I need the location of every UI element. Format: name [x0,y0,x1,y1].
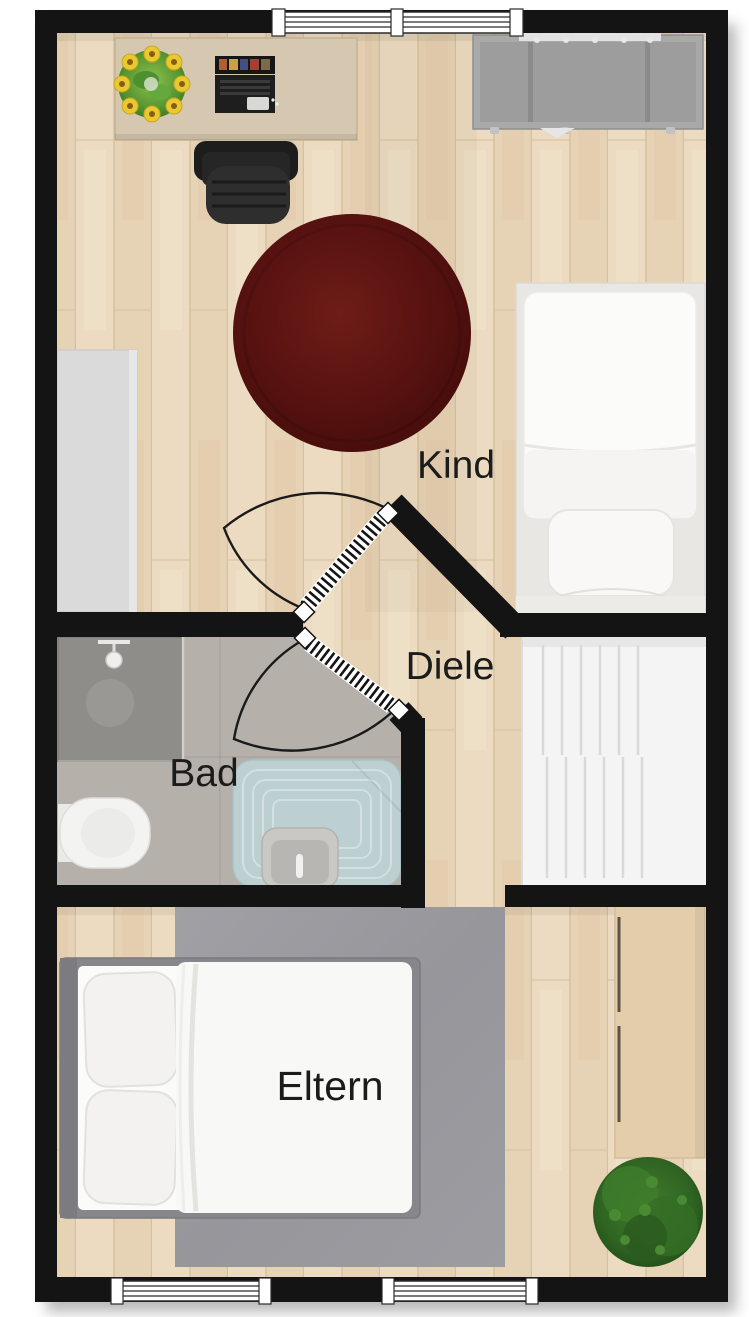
wall-bad-eltern [35,885,425,907]
bad-sink [262,828,338,888]
bad-toilet [58,798,150,868]
wall-outer-left [35,10,57,1302]
label-room-bad: Bad [169,752,238,795]
floorplan-page: Kind Diele Bad Eltern [0,0,749,1317]
diele-stairs [521,637,706,885]
bad-shower [58,637,183,761]
kind-left-shelf [57,350,137,612]
wall-kind-stairs [500,613,706,637]
window-bottom-right [382,1278,538,1304]
window-top [272,9,523,36]
kind-single-bed [516,283,705,613]
window-bottom-left [111,1278,271,1304]
wall-bad-right [401,718,425,908]
eltern-wardrobe [615,905,705,1158]
kind-laptop [215,56,279,113]
label-room-diele: Diele [406,645,495,688]
wall-diele-eltern [505,885,728,907]
floorplan-drawing: Kind Diele Bad Eltern [0,0,749,1317]
label-room-eltern: Eltern [276,1063,383,1109]
wall-kind-bad [35,612,303,637]
wall-outer-right [706,10,728,1302]
kind-office-chair [194,141,298,224]
eltern-plant [593,1157,703,1267]
kind-bed-pillow [548,510,674,596]
kind-desk-plant [114,46,190,122]
kind-wall-shelf-unit [473,33,703,138]
kind-round-rug [233,214,471,452]
label-room-kind: Kind [417,444,495,487]
